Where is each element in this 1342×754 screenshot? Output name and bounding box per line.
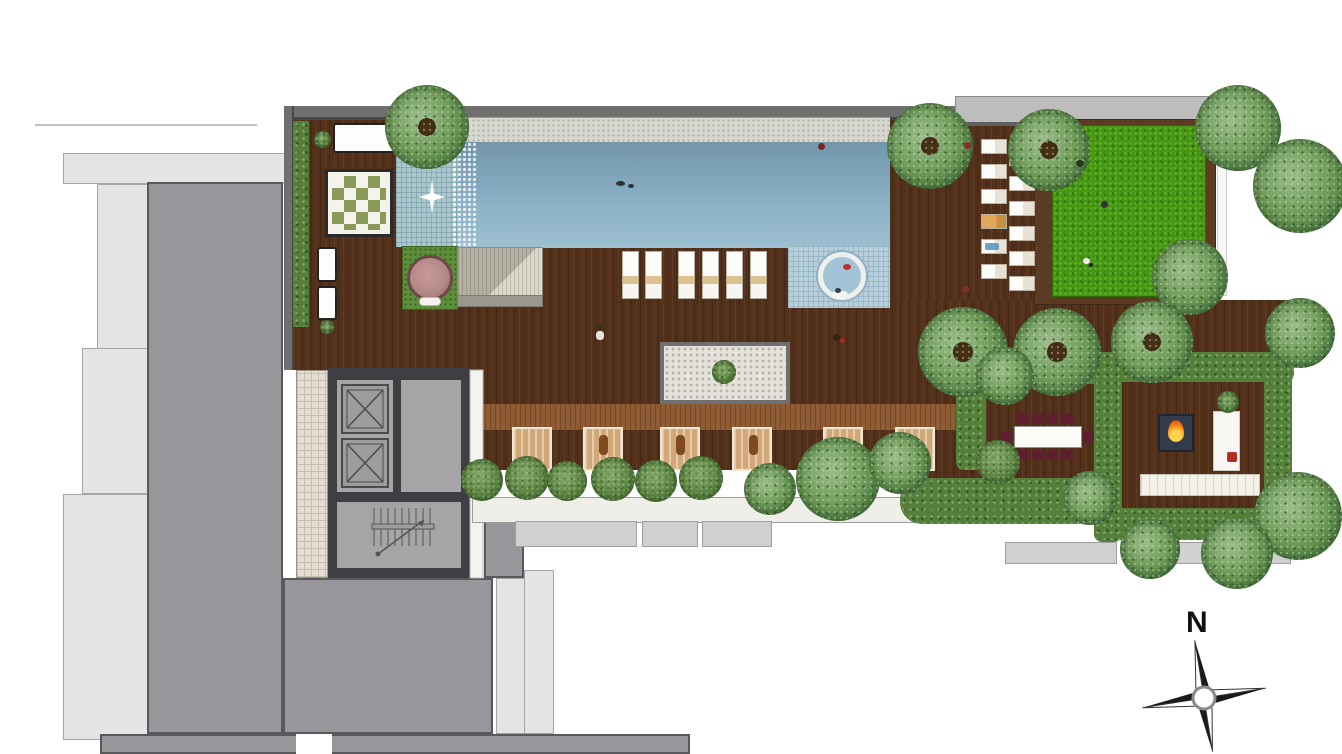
shrub [591, 457, 635, 501]
shrub [547, 461, 587, 501]
building-roof-strip [100, 734, 690, 754]
person-figure [599, 435, 608, 455]
sun-lounger [981, 214, 1007, 229]
tree [1265, 298, 1335, 368]
sun-lounger [726, 251, 743, 299]
sun-lounger [702, 251, 719, 299]
sun-lounger [1009, 251, 1035, 266]
potted-shrub [320, 320, 334, 334]
person-figure [596, 331, 604, 340]
elevator-shaft [342, 439, 388, 487]
stone-platform-edge [457, 295, 543, 307]
compass-north-label: N [1186, 606, 1208, 639]
sun-lounger [750, 251, 767, 299]
tree [1253, 139, 1342, 233]
hedge-strip-west [293, 121, 309, 327]
tree [1111, 301, 1193, 383]
dining-chair [1047, 414, 1058, 424]
dining-chair [1032, 414, 1043, 424]
lounge-bench [1140, 474, 1260, 496]
person-figure [833, 334, 840, 341]
fire-flame-icon [1168, 420, 1184, 442]
shrub [635, 460, 677, 502]
tree [869, 432, 931, 494]
spa-bench [317, 286, 337, 320]
dining-chair [1017, 414, 1028, 424]
sun-lounger [1009, 276, 1035, 291]
shrub [505, 456, 549, 500]
core-service-strip [296, 370, 328, 578]
shrub [976, 440, 1020, 484]
waterfall-edge [452, 142, 478, 247]
tree [1201, 517, 1273, 589]
tree [976, 347, 1034, 405]
person-figure [749, 435, 758, 455]
person-figure [1101, 201, 1108, 208]
dining-table [1014, 426, 1082, 448]
person-figure [962, 286, 969, 293]
dining-chair [1083, 431, 1094, 444]
elevator-stair-core [328, 368, 484, 580]
sun-lounger [981, 164, 1007, 179]
sun-lounger [645, 251, 662, 299]
building-edge-strip [524, 570, 554, 734]
sun-lounger [981, 189, 1007, 204]
person-figure [964, 142, 971, 149]
sun-lounger [981, 139, 1007, 154]
sun-lounger [1009, 201, 1035, 216]
dining-chair [1062, 414, 1073, 424]
daybed-step [419, 297, 441, 306]
dining-chair [1047, 450, 1058, 460]
building-roof-mass [283, 578, 493, 734]
building-outline-line [35, 124, 257, 126]
person-figure [1076, 160, 1084, 167]
planter-box [1005, 542, 1117, 564]
tree [1063, 471, 1117, 525]
tree [744, 463, 796, 515]
sun-lounger [1009, 226, 1035, 241]
sun-lounger [678, 251, 695, 299]
floor-plan: N [0, 0, 1342, 754]
dining-chair [1062, 450, 1073, 460]
swimming-pool [458, 142, 890, 248]
spa-bench [317, 247, 337, 282]
building-balcony-strip [63, 153, 313, 184]
person-figure [1089, 263, 1093, 267]
compass-rose: N [1124, 602, 1284, 754]
person-figure [835, 288, 841, 293]
person-figure [628, 184, 634, 188]
planter-box [515, 521, 637, 547]
lounge-sofa [1213, 411, 1240, 471]
roof-notch [296, 734, 332, 754]
person-figure [840, 338, 845, 343]
towel [985, 243, 999, 250]
person-figure [676, 435, 685, 455]
planter-box [702, 521, 772, 547]
potted-shrub [314, 131, 331, 148]
shrub [461, 459, 503, 501]
elevator-shaft [342, 385, 388, 433]
shrub [679, 456, 723, 500]
tree [1008, 109, 1090, 191]
shrub-ball [1217, 391, 1239, 413]
building-balcony-column [63, 494, 149, 740]
person-figure [616, 181, 625, 186]
building-balcony-column [82, 348, 149, 494]
tree [385, 85, 469, 169]
sofa-cushion [1227, 452, 1237, 462]
tree [796, 437, 880, 521]
person-figure [818, 143, 825, 150]
checker-spa-mat [325, 169, 393, 237]
zen-shrub-ball [712, 360, 736, 384]
tree [1120, 519, 1180, 579]
building-roof-mass [147, 182, 283, 734]
tree [887, 103, 973, 189]
pool-coping [396, 117, 890, 143]
sun-lounger [622, 251, 639, 299]
planter-box [642, 521, 698, 547]
person-figure [843, 264, 851, 270]
round-daybed [407, 255, 453, 301]
person-figure [597, 324, 603, 330]
dining-chair [1032, 450, 1043, 460]
sun-lounger [981, 264, 1007, 279]
